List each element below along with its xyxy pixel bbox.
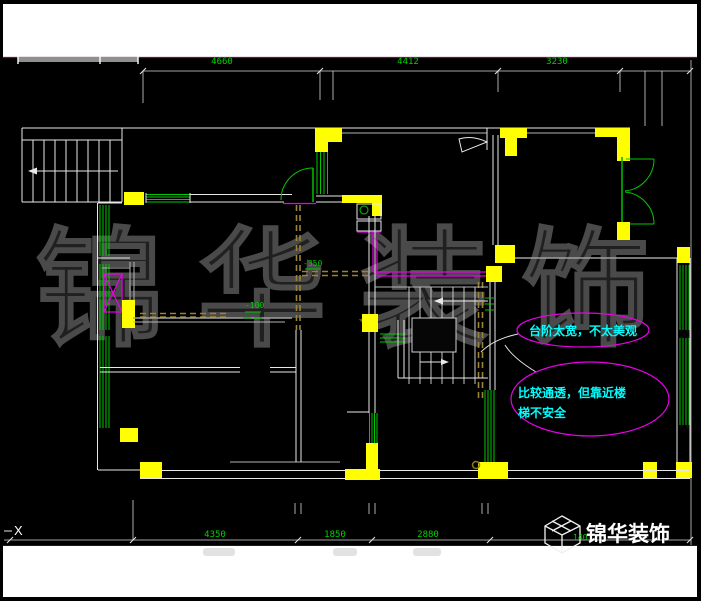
column — [617, 128, 630, 161]
dim-top-2: 4412 — [397, 57, 419, 67]
column — [362, 314, 378, 332]
column — [120, 428, 138, 442]
floor-plan-canvas: 锦 华 装 饰 4660 4412 3230 — [0, 0, 701, 601]
column — [617, 222, 630, 240]
level-label-2: -100 — [245, 301, 264, 310]
column — [677, 247, 690, 263]
column — [124, 192, 144, 205]
dim-bottom-1: 4350 — [204, 530, 226, 540]
column — [345, 469, 380, 480]
column — [122, 300, 135, 328]
cad-screenshot-root: { "watermark": { "chars": ["锦", "华", "装"… — [0, 0, 701, 601]
dim-top-1: 4660 — [211, 57, 233, 67]
note-text-2-line1: 比较通透，但靠近楼 — [518, 385, 626, 400]
watermark-char-4: 饰 — [522, 219, 650, 362]
column — [478, 462, 508, 479]
column — [366, 443, 378, 470]
stair-void — [412, 318, 456, 352]
x-axis-label: X — [14, 523, 23, 538]
logo-name: 锦华装饰 — [586, 522, 670, 546]
dim-bottom-3: 2880 — [417, 530, 439, 540]
column — [140, 462, 162, 478]
dim-bottom-2: 1850 — [324, 530, 346, 540]
column — [315, 128, 328, 152]
column — [342, 195, 372, 203]
level-label-1: -350 — [303, 259, 322, 268]
watermark-char-2: 华 — [198, 219, 326, 362]
dim-top-3: 3230 — [546, 57, 568, 67]
note-text-1: 台阶太宽，不太美观 — [529, 323, 637, 338]
note-text-2-line2: 梯不安全 — [518, 405, 567, 420]
column — [505, 136, 517, 156]
column — [495, 245, 515, 263]
column — [486, 266, 502, 282]
